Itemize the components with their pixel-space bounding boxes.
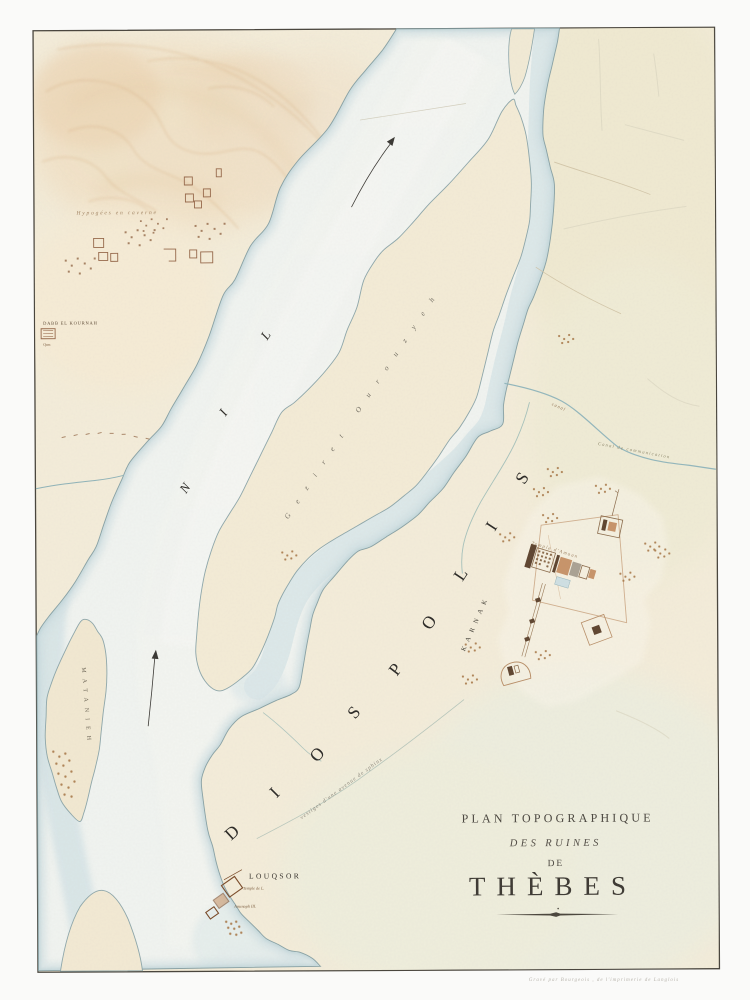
svg-text:Gravé par Bourgeois , de l'imp: Gravé par Bourgeois , de l'imprimerie de… xyxy=(529,978,679,983)
